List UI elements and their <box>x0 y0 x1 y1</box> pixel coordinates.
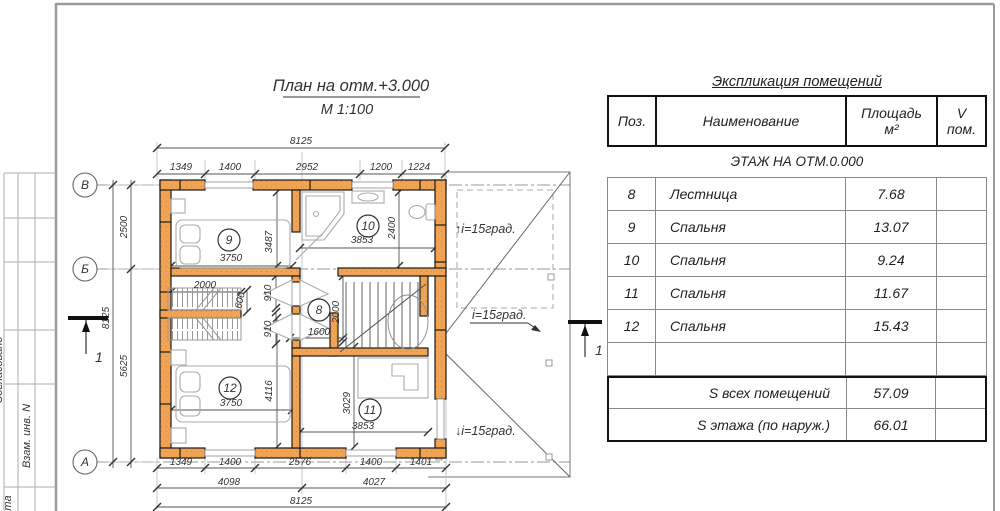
section-label-left: 1 <box>95 349 103 365</box>
total-row: S этажа (по наруж.)66.01 <box>609 409 985 440</box>
svg-text:1349: 1349 <box>170 162 193 173</box>
bath-door-leaf <box>296 234 322 260</box>
plan-title: План на отм.+3.000 М 1:100 <box>273 77 430 118</box>
table-row-empty <box>608 343 986 376</box>
svg-text:1600: 1600 <box>308 327 331 338</box>
grid-label-a: А <box>80 455 89 469</box>
svg-text:3853: 3853 <box>352 421 375 432</box>
table-header-row: Поз. Наименование Площадьм² Vпом. <box>607 95 987 147</box>
col-header-name: Наименование <box>657 97 847 145</box>
stamp-label-soglasovano: Согласовано <box>0 336 5 403</box>
grid-label-b: Б <box>81 262 89 276</box>
table-section-title: ЭТАЖ НА ОТМ.0.000 <box>607 147 987 177</box>
table-totals: S всех помещений57.09 S этажа (по наруж.… <box>607 376 987 442</box>
svg-text:1349: 1349 <box>170 457 193 468</box>
svg-text:2000: 2000 <box>193 280 217 291</box>
room-11-number: 11 <box>364 403 376 417</box>
slope-right-label: i=15град. <box>472 308 526 322</box>
svg-text:1400: 1400 <box>219 162 242 173</box>
svg-text:5625: 5625 <box>119 354 130 377</box>
table-row: 12Спальня15.43 <box>608 310 986 343</box>
svg-text:3487: 3487 <box>264 230 275 253</box>
col-header-area: Площадьм² <box>847 97 938 145</box>
room-9-number: 9 <box>226 233 233 247</box>
svg-text:1200: 1200 <box>370 162 393 173</box>
table-row: 9Спальня13.07 <box>608 211 986 244</box>
svg-text:1400: 1400 <box>219 457 242 468</box>
stamp-label-vzam-inv: Взам. инв. N <box>21 404 33 468</box>
svg-text:4027: 4027 <box>363 477 386 488</box>
section-mark-right: 1 <box>568 322 603 358</box>
svg-text:910: 910 <box>263 284 274 301</box>
table-row: 8Лестница7.68 <box>608 178 986 211</box>
plan-title-text: План на отм.+3.000 <box>273 77 430 95</box>
svg-text:2576: 2576 <box>288 457 312 468</box>
svg-text:2952: 2952 <box>295 162 319 173</box>
svg-text:1400: 1400 <box>360 457 383 468</box>
svg-text:3029: 3029 <box>342 391 353 414</box>
table-row: 10Спальня9.24 <box>608 244 986 277</box>
svg-text:2000: 2000 <box>331 300 342 324</box>
svg-text:8125: 8125 <box>290 496 313 507</box>
total-row: S всех помещений57.09 <box>609 378 985 409</box>
col-header-pos: Поз. <box>609 97 657 145</box>
svg-text:3853: 3853 <box>351 235 374 246</box>
svg-text:2500: 2500 <box>119 215 130 239</box>
svg-text:1224: 1224 <box>408 162 431 173</box>
svg-text:3750: 3750 <box>220 253 243 264</box>
svg-text:4098: 4098 <box>218 477 241 488</box>
stamp-labels: Согласовано Взам. инв. N та <box>0 336 33 510</box>
section-label-right: 1 <box>595 342 603 358</box>
svg-text:2400: 2400 <box>387 216 398 240</box>
svg-text:4116: 4116 <box>264 380 275 402</box>
drawing-sheet: Согласовано Взам. инв. N та В Б А ↑i=15г… <box>0 0 1000 511</box>
svg-text:910: 910 <box>263 320 274 337</box>
room-12-number: 12 <box>223 381 237 395</box>
room-10-number: 10 <box>361 219 375 233</box>
grid-bubbles: В Б А <box>73 173 97 474</box>
svg-text:8125: 8125 <box>290 136 313 147</box>
toilet <box>409 206 425 219</box>
stairs <box>340 282 428 352</box>
slope-down-label: ↓i=15град. <box>455 424 516 438</box>
room-8-number: 8 <box>316 303 323 317</box>
explication-table: Экспликация помещений Поз. Наименование … <box>607 74 987 442</box>
grid-label-v: В <box>81 178 89 192</box>
slope-up-label: ↑i=15град. <box>455 222 516 236</box>
plan-scale-text: М 1:100 <box>321 102 373 118</box>
table-caption: Экспликация помещений <box>607 74 987 92</box>
svg-text:600: 600 <box>233 291 247 310</box>
stamp-label-ta: та <box>2 495 14 510</box>
svg-text:3750: 3750 <box>220 398 243 409</box>
nightstand <box>171 199 185 213</box>
table-body: 8Лестница7.68 9Спальня13.07 10Спальня9.2… <box>607 177 987 376</box>
table-row: 11Спальня11.67 <box>608 277 986 310</box>
col-header-volume: Vпом. <box>938 97 985 145</box>
svg-text:1401: 1401 <box>410 457 432 468</box>
